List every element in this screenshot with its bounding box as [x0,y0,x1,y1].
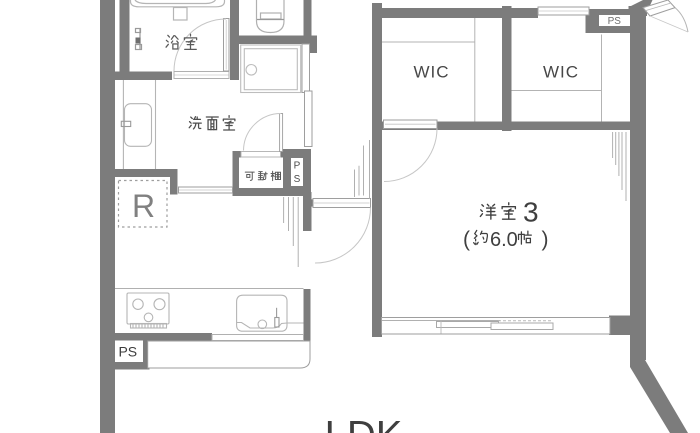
svg-text:PS: PS [608,16,622,27]
svg-text:R: R [132,188,155,224]
svg-text:6.0: 6.0 [490,229,518,251]
svg-text:(: ( [463,228,470,251]
svg-text:): ) [542,228,549,251]
svg-text:WIC: WIC [543,63,579,82]
svg-text:S: S [294,174,301,185]
svg-text:LDK: LDK [325,414,403,433]
svg-text:WIC: WIC [414,63,450,82]
svg-text:3: 3 [523,197,539,228]
svg-text:PS: PS [118,344,137,360]
svg-text:P: P [294,161,301,172]
